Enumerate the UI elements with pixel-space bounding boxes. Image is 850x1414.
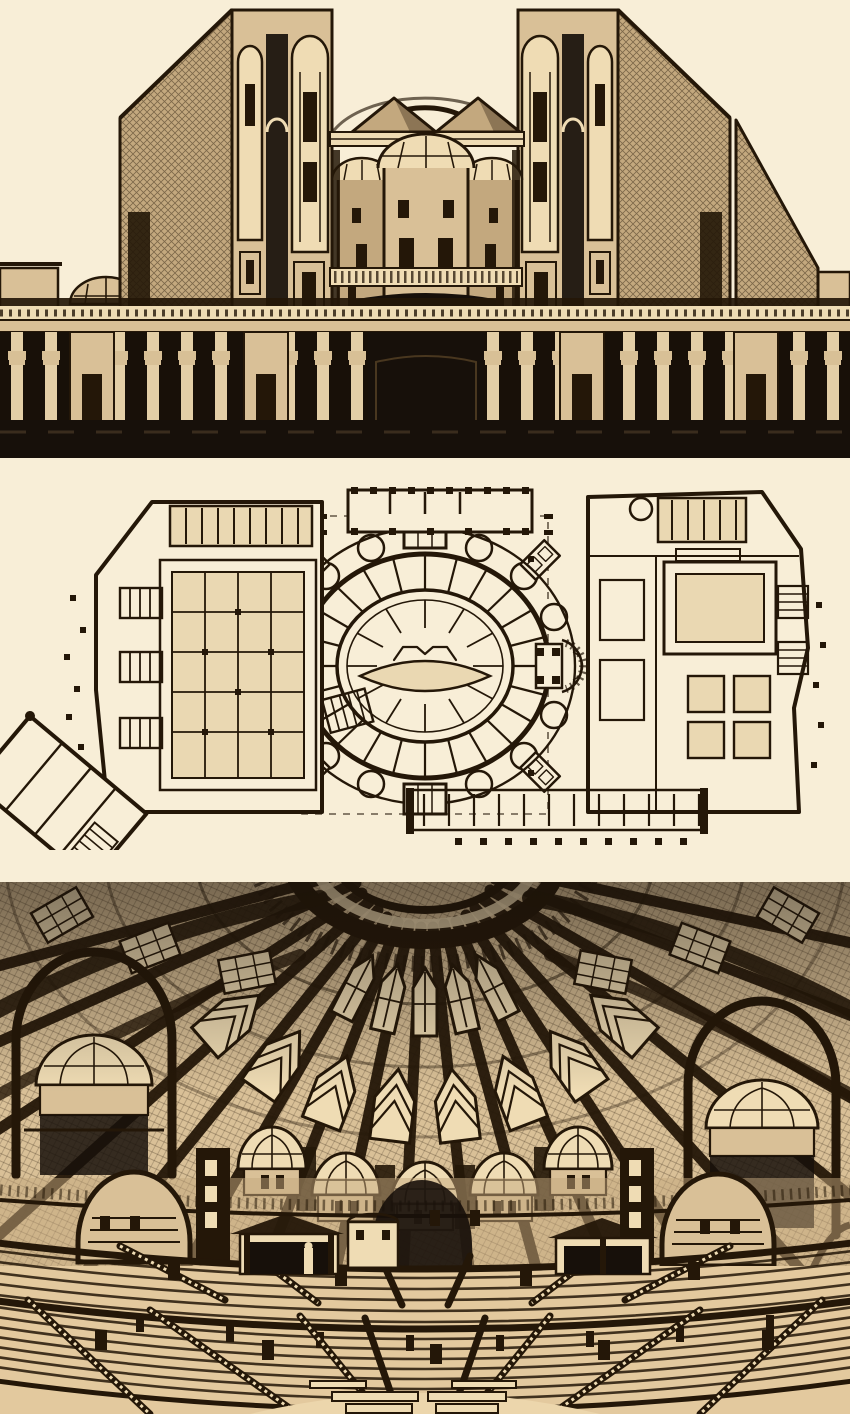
north-foyer bbox=[348, 487, 532, 535]
plan-right-wing bbox=[588, 492, 826, 812]
amphitheater-seating bbox=[0, 1242, 850, 1414]
panel-exterior-elevation bbox=[0, 0, 850, 458]
colonnade bbox=[0, 298, 850, 458]
scanned-architecture-plate bbox=[0, 0, 850, 1414]
panel-floor-plan bbox=[0, 482, 850, 850]
plan-left-wing bbox=[0, 502, 373, 850]
central-apse-cluster bbox=[330, 98, 524, 330]
panel-interior-perspective bbox=[0, 882, 850, 1414]
floor-plan-drawing bbox=[0, 482, 850, 850]
exterior-elevation-drawing bbox=[0, 0, 850, 458]
interior-perspective-drawing bbox=[0, 882, 850, 1414]
